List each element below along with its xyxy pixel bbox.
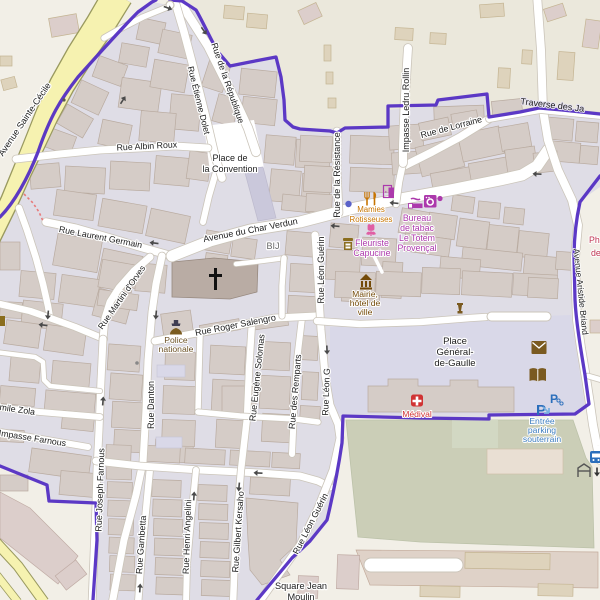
svg-text:de tabac: de tabac bbox=[400, 223, 434, 233]
svg-text:ville: ville bbox=[358, 307, 373, 317]
svg-text:P: P bbox=[550, 392, 558, 406]
svg-text:Capucine: Capucine bbox=[353, 248, 390, 258]
svg-text:de-Gaulle: de-Gaulle bbox=[434, 358, 475, 369]
svg-text:Rue de la Résistance: Rue de la Résistance bbox=[332, 132, 342, 218]
svg-text:Bureau: Bureau bbox=[403, 213, 431, 223]
svg-text:Médival: Médival bbox=[402, 409, 432, 419]
svg-text:Provençal: Provençal bbox=[397, 243, 436, 253]
svg-text:Rotisseuses: Rotisseuses bbox=[350, 215, 393, 224]
svg-text:Place de: Place de bbox=[212, 153, 247, 163]
svg-text:Rue Léon Guérin: Rue Léon Guérin bbox=[316, 236, 326, 303]
svg-text:Rue Danton: Rue Danton bbox=[146, 381, 156, 429]
svg-text:souterrain: souterrain bbox=[523, 434, 561, 444]
svg-text:nationale: nationale bbox=[159, 344, 194, 354]
svg-text:de: de bbox=[591, 248, 600, 258]
svg-text:Général-: Général- bbox=[437, 347, 474, 358]
svg-text:Le Totem: Le Totem bbox=[399, 233, 435, 243]
svg-text:BIJ: BIJ bbox=[266, 241, 279, 251]
svg-text:Impasse Ledru Rollin: Impasse Ledru Rollin bbox=[401, 68, 411, 153]
svg-text:Square Jean: Square Jean bbox=[275, 581, 327, 591]
svg-text:Rue Léon G: Rue Léon G bbox=[320, 368, 332, 416]
svg-text:Phar: Phar bbox=[589, 235, 600, 245]
svg-text:Place: Place bbox=[443, 336, 467, 347]
svg-text:la Convention: la Convention bbox=[202, 164, 257, 174]
svg-text:Fleuriste: Fleuriste bbox=[355, 238, 389, 248]
svg-text:Mamies: Mamies bbox=[357, 205, 385, 214]
svg-text:Moulin: Moulin bbox=[287, 592, 314, 600]
